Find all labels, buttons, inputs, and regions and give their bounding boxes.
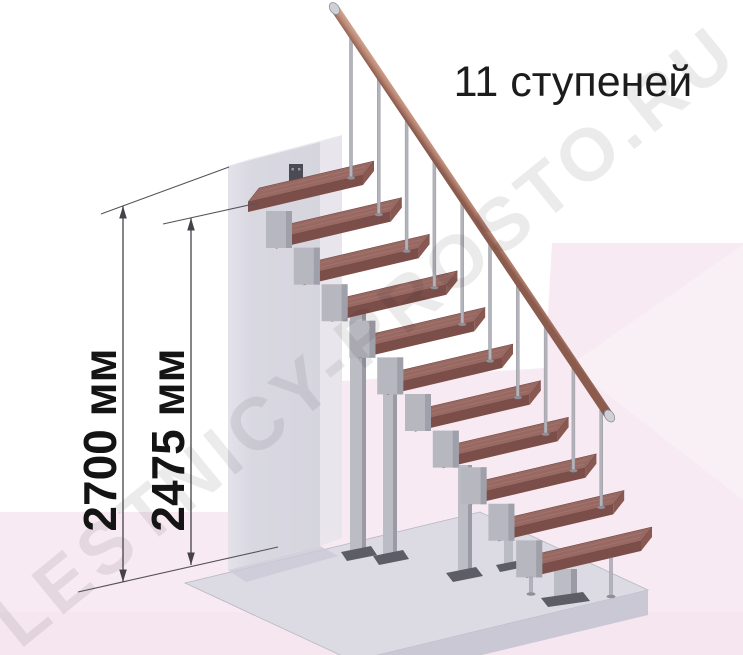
- tread-support-module-shade: [286, 211, 292, 248]
- baluster-foot: [486, 359, 494, 362]
- dimension-label-total-height: 2700 мм: [74, 348, 126, 531]
- baluster-rod: [544, 323, 547, 434]
- baluster-foot: [375, 213, 383, 216]
- floor-rod-foot: [527, 592, 536, 596]
- baluster-foot: [597, 506, 605, 509]
- tread-support-module-shade: [453, 431, 459, 468]
- floor-rod-foot: [607, 595, 616, 599]
- support-column-mid-shade: [393, 394, 397, 557]
- dimension-label-top-step-height: 2475 мм: [142, 348, 194, 531]
- baluster-rod: [350, 32, 353, 178]
- baluster-rod: [600, 406, 603, 508]
- page-title: 11 ступеней: [454, 58, 693, 106]
- baluster-rod: [572, 364, 575, 470]
- baluster-rod: [377, 74, 380, 215]
- tread-support-module-shade: [508, 504, 514, 541]
- baluster-foot: [569, 469, 577, 472]
- tread-support-module-shade: [536, 540, 542, 577]
- baluster-rod: [516, 281, 519, 397]
- baluster-foot: [542, 433, 550, 436]
- diagram-canvas: LESTNICY-PROSTO.RU 2700 мм 2475 мм 11 ст…: [0, 0, 743, 655]
- tread-support-module-shade: [397, 357, 403, 394]
- baluster-rod: [405, 115, 408, 251]
- baluster-foot: [458, 323, 466, 326]
- floor-rod: [610, 558, 613, 596]
- baluster-foot: [514, 396, 522, 399]
- staircase-diagram: LESTNICY-PROSTO.RU 2700 мм 2475 мм 11 ст…: [0, 0, 743, 655]
- floor-rod: [530, 577, 533, 594]
- tread-support-module-shade: [425, 394, 431, 431]
- tread-support-module-shade: [481, 467, 487, 504]
- tread-support-module-shade: [314, 248, 320, 285]
- baluster-foot: [347, 176, 355, 179]
